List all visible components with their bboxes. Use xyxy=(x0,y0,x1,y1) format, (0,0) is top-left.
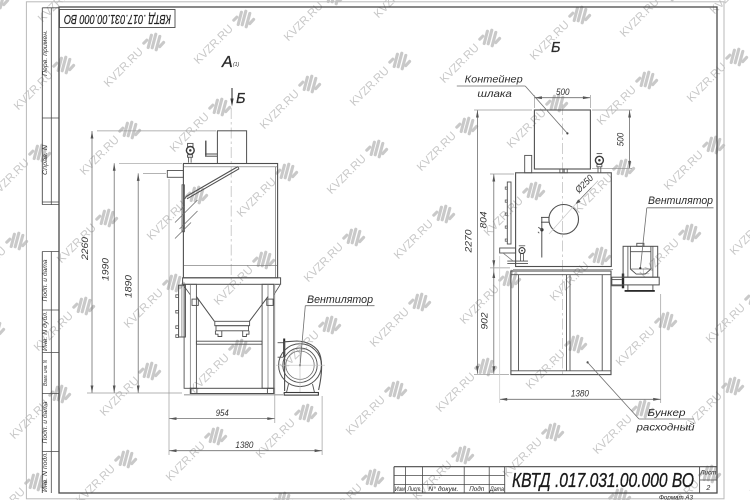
svg-text:Бункер: Бункер xyxy=(648,407,686,419)
svg-text:KVZR.RU: KVZR.RU xyxy=(662,149,706,193)
svg-text:954: 954 xyxy=(216,408,229,419)
svg-text:KVZR.RU: KVZR.RU xyxy=(254,417,298,461)
svg-text:1380: 1380 xyxy=(235,440,254,451)
svg-text:KVZR.RU: KVZR.RU xyxy=(392,218,436,262)
svg-text:KVZR.RU: KVZR.RU xyxy=(618,0,662,40)
svg-text:KVZR.RU: KVZR.RU xyxy=(344,394,388,438)
svg-text:Перв. примен.: Перв. примен. xyxy=(42,30,49,76)
svg-text:KVZR.RU: KVZR.RU xyxy=(434,371,478,415)
svg-text:500: 500 xyxy=(616,132,627,146)
svg-text:KVZR.RU: KVZR.RU xyxy=(708,0,750,17)
svg-text:Изм: Изм xyxy=(395,486,405,493)
svg-text:Вентилятор: Вентилятор xyxy=(307,294,373,306)
svg-text:KVZR.RU: KVZR.RU xyxy=(74,463,118,500)
svg-text:2270: 2270 xyxy=(464,229,475,254)
svg-text:KVZR.RU: KVZR.RU xyxy=(164,440,208,484)
svg-text:А: А xyxy=(221,54,233,71)
svg-text:1890: 1890 xyxy=(124,274,135,298)
svg-text:KVZR.RU: KVZR.RU xyxy=(372,0,416,21)
svg-text:КВТД .017.031.00.000 ВО: КВТД .017.031.00.000 ВО xyxy=(64,12,171,26)
svg-text:Лист: Лист xyxy=(407,486,421,493)
svg-text:KVZR.RU: KVZR.RU xyxy=(212,264,256,308)
svg-text:1380: 1380 xyxy=(571,388,590,399)
svg-text:КВТД .017.031.00.000 ВО: КВТД .017.031.00.000 ВО xyxy=(512,469,694,492)
svg-text:KVZR.RU: KVZR.RU xyxy=(411,459,455,500)
svg-text:KVZR.RU: KVZR.RU xyxy=(102,46,146,90)
svg-text:KVZR.RU: KVZR.RU xyxy=(258,88,302,132)
svg-text:Дата: Дата xyxy=(489,486,504,493)
svg-text:KVZR.RU: KVZR.RU xyxy=(188,352,232,396)
svg-text:Подп. и дата: Подп. и дата xyxy=(41,259,49,302)
svg-text:KVZR.RU: KVZR.RU xyxy=(524,348,568,392)
svg-text:Подп: Подп xyxy=(469,485,484,493)
svg-text:шлака: шлака xyxy=(477,88,512,100)
svg-text:KVZR.RU: KVZR.RU xyxy=(505,107,549,151)
svg-text:Инв. N подл.: Инв. N подл. xyxy=(41,452,49,492)
svg-text:902: 902 xyxy=(480,312,491,330)
svg-text:Инв. N дубл.: Инв. N дубл. xyxy=(41,311,49,351)
svg-text:KVZR.RU: KVZR.RU xyxy=(415,130,459,174)
svg-text:804: 804 xyxy=(479,212,490,229)
svg-text:KVZR.RU: KVZR.RU xyxy=(0,245,9,289)
svg-text:KVZR.RU: KVZR.RU xyxy=(614,325,658,369)
svg-text:KVZR.RU: KVZR.RU xyxy=(728,214,750,258)
svg-text:KVZR.RU: KVZR.RU xyxy=(321,482,365,500)
svg-text:(1): (1) xyxy=(233,62,239,68)
svg-text:Формат А3: Формат А3 xyxy=(659,494,693,500)
svg-text:KVZR.RU: KVZR.RU xyxy=(98,375,142,419)
svg-text:500: 500 xyxy=(556,87,570,98)
svg-text:Лист: Лист xyxy=(699,470,716,477)
svg-text:KVZR.RU: KVZR.RU xyxy=(235,176,279,220)
svg-text:KVZR.RU: KVZR.RU xyxy=(591,413,635,457)
svg-text:KVZR.RU: KVZR.RU xyxy=(12,69,56,113)
svg-text:Справ. N: Справ. N xyxy=(42,144,49,175)
svg-text:Взам. инв. N: Взам. инв. N xyxy=(43,359,49,386)
svg-text:Контейнер: Контейнер xyxy=(465,74,523,86)
svg-text:KVZR.RU: KVZR.RU xyxy=(528,19,572,63)
svg-text:1990: 1990 xyxy=(101,257,112,281)
svg-text:KVZR.RU: KVZR.RU xyxy=(325,153,369,197)
svg-text:KVZR.RU: KVZR.RU xyxy=(78,134,122,178)
svg-text:Вентилятор: Вентилятор xyxy=(648,195,713,207)
svg-text:расходный: расходный xyxy=(635,422,694,434)
svg-text:KVZR.RU: KVZR.RU xyxy=(704,302,748,346)
svg-text:Б: Б xyxy=(551,40,560,56)
svg-text:KVZR.RU: KVZR.RU xyxy=(32,310,76,354)
svg-text:Б: Б xyxy=(236,91,245,107)
svg-text:KVZR.RU: KVZR.RU xyxy=(302,241,346,285)
svg-text:KVZR.RU: KVZR.RU xyxy=(685,61,729,105)
svg-text:Подп. и дата: Подп. и дата xyxy=(41,401,49,444)
svg-text:N° докум.: N° докум. xyxy=(428,485,458,493)
svg-text:KVZR.RU: KVZR.RU xyxy=(595,84,639,128)
svg-text:KVZR.RU: KVZR.RU xyxy=(368,306,412,350)
svg-text:KVZR.RU: KVZR.RU xyxy=(0,486,28,500)
svg-text:2260: 2260 xyxy=(80,236,91,261)
svg-text:KVZR.RU: KVZR.RU xyxy=(348,65,392,109)
svg-text:KVZR.RU: KVZR.RU xyxy=(0,157,32,201)
svg-text:2: 2 xyxy=(705,485,710,492)
